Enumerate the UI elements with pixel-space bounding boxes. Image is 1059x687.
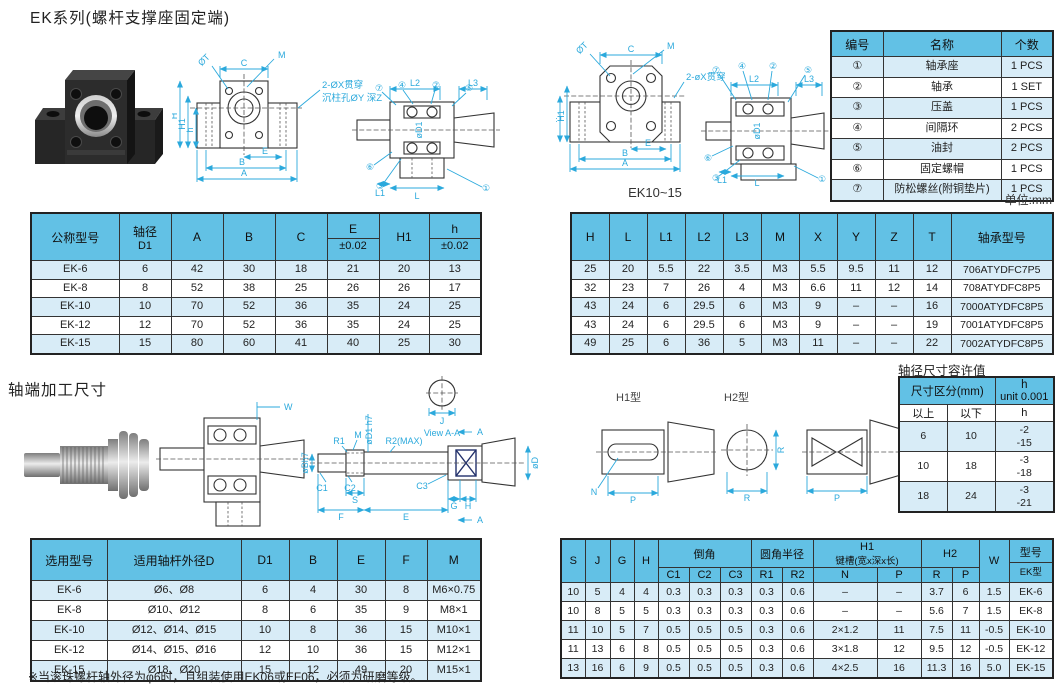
- table-header-row: 尺寸区分(mm)hunit 0.001: [899, 377, 1054, 405]
- data-cell: 24: [947, 482, 995, 513]
- section-title: 轴端加工尺寸: [8, 378, 107, 400]
- dim-label: øD: [530, 457, 540, 469]
- header-cell: B: [289, 539, 337, 581]
- data-cell: –: [875, 335, 913, 354]
- data-cell: 0.5: [689, 621, 720, 640]
- data-cell: EK-6: [31, 261, 119, 280]
- data-cell: 24: [379, 298, 429, 317]
- data-cell: 7: [952, 602, 979, 621]
- table-row: EK-1212705236352425: [31, 316, 481, 335]
- header-cell: N: [813, 568, 877, 583]
- data-cell: 11: [561, 640, 585, 659]
- dim-label: F: [338, 512, 344, 522]
- data-cell: 24: [379, 316, 429, 335]
- data-cell: M8×1: [427, 601, 481, 621]
- data-cell: 36: [337, 621, 385, 641]
- data-cell: 压盖: [883, 98, 1001, 119]
- data-cell: EK-15: [1009, 659, 1053, 679]
- dim-label: M: [278, 50, 286, 60]
- data-cell: 30: [223, 261, 275, 280]
- data-cell: M3: [761, 335, 799, 354]
- data-cell: 11: [952, 621, 979, 640]
- data-cell: 12: [119, 316, 171, 335]
- header-cell: Z: [875, 213, 913, 261]
- data-cell: 0.6: [782, 583, 813, 602]
- data-cell: 24: [609, 316, 647, 335]
- table-header-row: 编号名称个数: [831, 31, 1053, 57]
- header-cell: hunit 0.001: [995, 377, 1054, 405]
- data-cell: –: [877, 583, 921, 602]
- table-header-row: 选用型号适用轴杆外径DD1BEFM: [31, 539, 481, 581]
- callout-6: ⑥: [704, 153, 712, 163]
- data-cell: Ø14、Ø15、Ø16: [107, 641, 241, 661]
- table-row: 1110570.50.50.50.30.62×1.2117.511-0.5EK-…: [561, 621, 1053, 640]
- data-cell: 23: [609, 279, 647, 298]
- data-cell: 25: [609, 335, 647, 354]
- drawing-caption: EK10~15: [590, 185, 720, 200]
- data-cell: 油封: [883, 139, 1001, 160]
- header-cell: h±0.02: [429, 213, 481, 261]
- header-cell: L3: [723, 213, 761, 261]
- header-cell: F: [385, 539, 427, 581]
- data-cell: 7: [634, 621, 658, 640]
- header-cell: M: [427, 539, 481, 581]
- table-row: 1018-3 -18: [899, 452, 1054, 482]
- data-cell: ③: [831, 98, 883, 119]
- shaft-end-dimension-drawing: J View A-A øBh7 C1 R1 M C2 øD1 h7: [300, 368, 545, 533]
- dim-label: H1: [556, 110, 566, 122]
- data-cell: 6: [610, 659, 634, 679]
- data-cell: 29.5: [685, 316, 723, 335]
- dim-label: P: [834, 493, 840, 503]
- dim-label: A: [241, 168, 247, 178]
- table-header-row: 以上以下h: [899, 405, 1054, 422]
- data-cell: 25: [275, 279, 327, 298]
- data-cell: Ø12、Ø14、Ø15: [107, 621, 241, 641]
- data-cell: 10: [947, 422, 995, 452]
- dim-label: øD1: [752, 122, 762, 139]
- header-cell: S: [561, 539, 585, 583]
- dim-label: B: [622, 148, 628, 158]
- data-cell: EK-6: [1009, 583, 1053, 602]
- data-cell: 15: [385, 621, 427, 641]
- dim-label: L: [754, 178, 759, 188]
- header-cell: L2: [685, 213, 723, 261]
- data-cell: ④: [831, 118, 883, 139]
- data-cell: 49: [571, 335, 609, 354]
- table-row: 25205.5223.5M35.59.51112706ATYDFC7P5: [571, 261, 1053, 280]
- data-cell: 12: [952, 640, 979, 659]
- section-arrow-label: A: [477, 427, 483, 437]
- header-cell: H2: [921, 539, 979, 568]
- table-row: 1113680.50.50.50.30.63×1.8129.512-0.5EK-…: [561, 640, 1053, 659]
- data-cell: Ø10、Ø12: [107, 601, 241, 621]
- data-cell: 0.3: [658, 602, 689, 621]
- header-cell: 以下: [947, 405, 995, 422]
- callout-5: ⑤: [465, 83, 473, 93]
- data-cell: 706ATYDFC7P5: [951, 261, 1053, 280]
- data-cell: 0.3: [689, 602, 720, 621]
- dim-label: øD1 h7: [364, 415, 374, 445]
- header-cell: P: [952, 568, 979, 583]
- data-cell: 70: [171, 316, 223, 335]
- data-cell: 17: [429, 279, 481, 298]
- data-cell: 0.6: [782, 659, 813, 679]
- table-row: EK-6Ø6、Ø864308M6×0.75: [31, 581, 481, 601]
- data-cell: 8: [119, 279, 171, 298]
- data-cell: 36: [337, 641, 385, 661]
- data-cell: 6: [952, 583, 979, 602]
- data-cell: 2×1.2: [813, 621, 877, 640]
- data-cell: 8: [385, 581, 427, 601]
- table-row: ③压盖1 PCS: [831, 98, 1053, 119]
- data-cell: 0.5: [720, 621, 751, 640]
- dim-label: ØT: [574, 40, 590, 56]
- data-cell: –: [837, 298, 875, 317]
- header-cell: G: [610, 539, 634, 583]
- data-cell: 5: [610, 621, 634, 640]
- data-cell: 9: [799, 298, 837, 317]
- data-cell: -2 -15: [995, 422, 1054, 452]
- data-cell: 10: [289, 641, 337, 661]
- h1-type-drawing: H1型 N P: [588, 388, 718, 508]
- data-cell: 7001ATYDFC8P5: [951, 316, 1053, 335]
- table-row: 49256365M311––227002ATYDFC8P5: [571, 335, 1053, 354]
- data-cell: -0.5: [979, 621, 1009, 640]
- data-cell: 0.3: [689, 583, 720, 602]
- header-cell: 选用型号: [31, 539, 107, 581]
- data-cell: M3: [761, 316, 799, 335]
- data-cell: 26: [685, 279, 723, 298]
- table-row: 32237264M36.6111214708ATYDFC8P5: [571, 279, 1053, 298]
- header-cell: Y: [837, 213, 875, 261]
- front-side-drawing-ek6-8: A B E C H H1 h ØT M 2-ØX贯穿 沉柱孔ØY 深Z: [172, 38, 502, 210]
- header-cell: 倒角: [658, 539, 751, 568]
- data-cell: 18: [947, 452, 995, 482]
- header-cell: 个数: [1001, 31, 1053, 57]
- bearing-cross-section-drawing: W: [156, 388, 311, 533]
- callout-6: ⑥: [366, 162, 374, 172]
- dim-label: L: [414, 191, 419, 201]
- view-label: View A-A: [424, 428, 460, 438]
- header-cell: D1: [241, 539, 289, 581]
- data-cell: 38: [223, 279, 275, 298]
- data-cell: 10: [119, 298, 171, 317]
- data-cell: 0.3: [751, 659, 782, 679]
- data-cell: ⑤: [831, 139, 883, 160]
- data-cell: 7.5: [921, 621, 952, 640]
- dimension-table-right: HLL1L2L3MXYZT轴承型号25205.5223.5M35.59.5111…: [570, 212, 1054, 355]
- data-cell: 30: [429, 335, 481, 354]
- data-cell: 5.5: [647, 261, 685, 280]
- data-cell: 0.3: [720, 602, 751, 621]
- front-side-drawing-ek10-15: A B E C h H1 ØT M 2-øX贯穿: [556, 40, 832, 188]
- data-cell: M10×1: [427, 621, 481, 641]
- data-cell: M3: [761, 261, 799, 280]
- shaft-journal: [24, 453, 60, 477]
- header-cell: H: [571, 213, 609, 261]
- data-cell: 6: [647, 335, 685, 354]
- header-cell: C3: [720, 568, 751, 583]
- data-cell: 6: [723, 298, 761, 317]
- dimension-table-left: 公称型号轴径D1ABCE±0.02H1h±0.02EK-664230182120…: [30, 212, 482, 355]
- table-row: EK-12Ø14、Ø15、Ø1612103615M12×1: [31, 641, 481, 661]
- table-row: EK-8Ø10、Ø1286359M8×1: [31, 601, 481, 621]
- data-cell: 6: [723, 316, 761, 335]
- data-cell: 41: [275, 335, 327, 354]
- callout-4: ④: [738, 61, 746, 71]
- header-cell: 型号EK型: [1009, 539, 1053, 583]
- data-cell: 10: [899, 452, 947, 482]
- data-cell: EK-12: [1009, 640, 1053, 659]
- data-cell: 16: [913, 298, 951, 317]
- data-cell: 14: [913, 279, 951, 298]
- selection-table: 选用型号适用轴杆外径DD1BEFMEK-6Ø6、Ø864308M6×0.75EK…: [30, 538, 482, 682]
- data-cell: 6: [647, 316, 685, 335]
- table-row: 1316690.50.50.50.30.64×2.51611.3165.0EK-…: [561, 659, 1053, 679]
- dim-label: C: [241, 58, 248, 68]
- data-cell: 18: [275, 261, 327, 280]
- shaft-collar: [119, 431, 128, 499]
- callout-5: ⑤: [804, 65, 812, 75]
- data-cell: 30: [337, 581, 385, 601]
- data-cell: 11: [799, 335, 837, 354]
- tolerance-table: 尺寸区分(mm)hunit 0.001以上以下h610-2 -151018-3 …: [898, 376, 1055, 513]
- data-cell: 0.5: [658, 621, 689, 640]
- data-cell: 16: [585, 659, 610, 679]
- data-cell: –: [837, 316, 875, 335]
- data-cell: -3 -18: [995, 452, 1054, 482]
- data-cell: 间隔环: [883, 118, 1001, 139]
- data-cell: 25: [571, 261, 609, 280]
- data-cell: 1.5: [979, 602, 1009, 621]
- data-cell: 35: [327, 316, 379, 335]
- header-cell: H: [634, 539, 658, 583]
- data-cell: 9.5: [837, 261, 875, 280]
- data-cell: M12×1: [427, 641, 481, 661]
- data-cell: M15×1: [427, 661, 481, 682]
- data-cell: 固定螺帽: [883, 159, 1001, 180]
- header-cell: C1: [658, 568, 689, 583]
- callout-7: ⑦: [375, 83, 383, 93]
- data-cell: 15: [119, 335, 171, 354]
- data-cell: 70: [171, 298, 223, 317]
- data-cell: 10: [241, 621, 289, 641]
- data-cell: EK-8: [31, 279, 119, 298]
- data-cell: 35: [337, 601, 385, 621]
- data-cell: ②: [831, 77, 883, 98]
- table-row: 4324629.56M39––197001ATYDFC8P5: [571, 316, 1053, 335]
- data-cell: 5.5: [799, 261, 837, 280]
- data-cell: M6×0.75: [427, 581, 481, 601]
- dim-label: h: [185, 127, 195, 132]
- data-cell: 52: [223, 316, 275, 335]
- data-cell: 11: [877, 621, 921, 640]
- header-cell: A: [171, 213, 223, 261]
- header-cell: R2: [782, 568, 813, 583]
- data-cell: –: [877, 602, 921, 621]
- h2-type-drawing: H2型 R R P: [712, 388, 907, 508]
- data-cell: 6: [647, 298, 685, 317]
- page: EK系列(螺杆支撑座固定端): [0, 0, 1059, 687]
- data-cell: 轴承座: [883, 57, 1001, 78]
- data-cell: 20: [609, 261, 647, 280]
- dim-label: G: [450, 501, 457, 511]
- dim-label: L2: [410, 78, 420, 88]
- data-cell: EK-8: [1009, 602, 1053, 621]
- data-cell: 2 PCS: [1001, 139, 1053, 160]
- data-cell: ①: [831, 57, 883, 78]
- data-cell: 8: [241, 601, 289, 621]
- data-cell: 26: [379, 279, 429, 298]
- data-cell: 1 PCS: [1001, 57, 1053, 78]
- data-cell: –: [875, 316, 913, 335]
- callout-1: ①: [818, 174, 826, 184]
- data-cell: 80: [171, 335, 223, 354]
- data-cell: 11: [561, 621, 585, 640]
- data-cell: 0.3: [751, 621, 782, 640]
- socket-screw: [71, 137, 82, 148]
- dim-label: M: [354, 430, 362, 440]
- header-cell: 轴径D1: [119, 213, 171, 261]
- data-cell: 0.3: [720, 583, 751, 602]
- data-cell: 轴承: [883, 77, 1001, 98]
- data-cell: 40: [327, 335, 379, 354]
- data-cell: 0.5: [720, 659, 751, 679]
- dim-label: J: [440, 416, 445, 426]
- header-cell: B: [223, 213, 275, 261]
- data-cell: 6.6: [799, 279, 837, 298]
- header-cell: 公称型号: [31, 213, 119, 261]
- data-cell: 60: [223, 335, 275, 354]
- data-cell: 3.5: [723, 261, 761, 280]
- dim-label: øBh7: [300, 452, 310, 474]
- dim-label: R: [744, 493, 751, 503]
- socket-screw: [111, 89, 122, 100]
- dim-label: R: [776, 446, 786, 453]
- data-cell: 32: [571, 279, 609, 298]
- dim-label: C: [628, 44, 635, 54]
- data-cell: 5: [585, 583, 610, 602]
- data-cell: 16: [952, 659, 979, 679]
- drill-note-line1: 2-ØX贯穿: [322, 79, 363, 91]
- data-cell: –: [813, 583, 877, 602]
- table-header-row: SJGH倒角圆角半径H1键槽(宽x深x长)H2W型号EK型: [561, 539, 1053, 568]
- data-cell: 3.7: [921, 583, 952, 602]
- data-cell: 6: [289, 601, 337, 621]
- data-cell: Ø6、Ø8: [107, 581, 241, 601]
- data-cell: 0.6: [782, 602, 813, 621]
- header-cell: C: [275, 213, 327, 261]
- data-cell: 0.5: [658, 659, 689, 679]
- header-cell: H1: [379, 213, 429, 261]
- table-row: 105440.30.30.30.30.6––3.761.5EK-6: [561, 583, 1053, 602]
- dim-label: P: [630, 495, 636, 505]
- data-cell: 9: [634, 659, 658, 679]
- data-cell: 4: [610, 583, 634, 602]
- callout-7: ⑦: [712, 65, 720, 75]
- data-cell: 19: [913, 316, 951, 335]
- header-cell: 编号: [831, 31, 883, 57]
- front-view: [190, 74, 302, 155]
- data-cell: 5.6: [921, 602, 952, 621]
- dim-label: W: [284, 402, 293, 412]
- data-cell: 36: [275, 316, 327, 335]
- header-cell: 适用轴杆外径D: [107, 539, 241, 581]
- data-cell: 6: [899, 422, 947, 452]
- table-row: EK-66423018212013: [31, 261, 481, 280]
- data-cell: –: [875, 298, 913, 317]
- data-cell: 0.5: [689, 640, 720, 659]
- data-cell: EK-15: [31, 335, 119, 354]
- dim-label: R1: [333, 436, 345, 446]
- data-cell: 4: [634, 583, 658, 602]
- dim-label: A: [622, 158, 628, 168]
- data-cell: EK-10: [31, 621, 107, 641]
- data-cell: 42: [171, 261, 223, 280]
- table-row: 108550.30.30.30.30.6––5.671.5EK-8: [561, 602, 1053, 621]
- dim-label: M: [667, 41, 675, 51]
- data-cell: ⑥: [831, 159, 883, 180]
- unit-note: 单位:mm: [940, 191, 1052, 208]
- header-cell: R1: [751, 568, 782, 583]
- data-cell: 16: [877, 659, 921, 679]
- dim-label: N: [591, 487, 598, 497]
- table-row: ④间隔环2 PCS: [831, 118, 1053, 139]
- table-row: ⑤油封2 PCS: [831, 139, 1053, 160]
- header-cell: J: [585, 539, 610, 583]
- data-cell: -3 -21: [995, 482, 1054, 513]
- data-cell: EK-8: [31, 601, 107, 621]
- data-cell: 5: [610, 602, 634, 621]
- data-cell: 13: [429, 261, 481, 280]
- header-cell: 以上: [899, 405, 947, 422]
- dim-label: L3: [804, 74, 814, 84]
- table-row: 1824-3 -21: [899, 482, 1054, 513]
- callout-2: ②: [769, 61, 777, 71]
- dim-label: S: [352, 495, 358, 505]
- data-cell: 25: [379, 335, 429, 354]
- header-cell: W: [979, 539, 1009, 583]
- header-cell: H1键槽(宽x深x长): [813, 539, 921, 568]
- data-cell: 12: [913, 261, 951, 280]
- mount-hole: [138, 111, 151, 117]
- data-cell: 35: [327, 298, 379, 317]
- front-view: [564, 60, 686, 148]
- data-cell: 8: [634, 640, 658, 659]
- header-cell: R: [921, 568, 952, 583]
- header-cell: 尺寸区分(mm): [899, 377, 995, 405]
- callout-1: ①: [482, 183, 490, 193]
- table-row: EK-1515806041402530: [31, 335, 481, 354]
- dim-label: ØT: [196, 52, 212, 68]
- mount-hole: [47, 111, 60, 117]
- dim-label: R2(MAX): [385, 436, 422, 446]
- callout-3: ③: [376, 181, 384, 191]
- product-photo: [20, 42, 170, 204]
- callout-2: ②: [432, 80, 440, 90]
- data-cell: 11: [875, 261, 913, 280]
- data-cell: 43: [571, 316, 609, 335]
- socket-screw: [71, 89, 82, 100]
- data-cell: 0.3: [751, 640, 782, 659]
- dim-label: B: [239, 157, 245, 167]
- table-row: EK-1010705236352425: [31, 298, 481, 317]
- table-row: ⑥固定螺帽1 PCS: [831, 159, 1053, 180]
- data-cell: 4: [723, 279, 761, 298]
- data-cell: EK-6: [31, 581, 107, 601]
- data-cell: 0.3: [751, 602, 782, 621]
